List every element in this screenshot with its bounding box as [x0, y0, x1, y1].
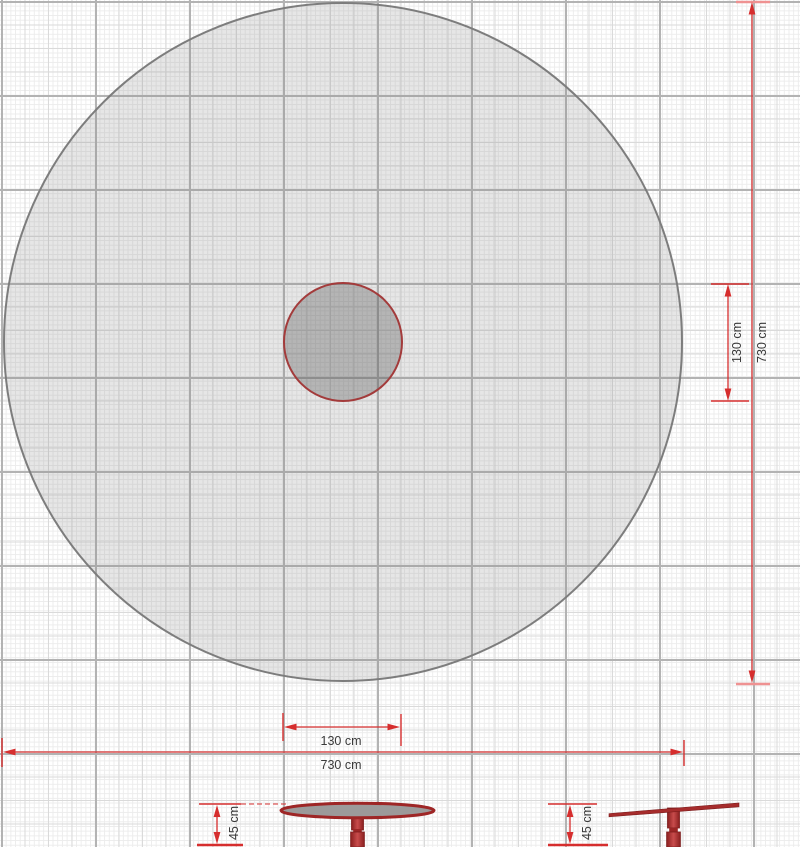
- dimension-drawing-svg: 130 cm 730 cm 130 cm 730 cm: [0, 0, 800, 847]
- dim-label-height-left: 45 cm: [227, 806, 241, 840]
- arrow-down-icon: [567, 832, 574, 844]
- arrow-up-icon: [214, 805, 221, 817]
- table-side-view: [609, 803, 739, 847]
- dim-label-inner-diameter-right: 130 cm: [730, 322, 744, 363]
- arrow-down-icon: [749, 671, 756, 684]
- dimension-height-right: 45 cm: [548, 804, 608, 845]
- dimension-right-inner: 130 cm: [711, 284, 749, 401]
- table-top-disc: [281, 803, 434, 818]
- arrow-right-icon: [671, 749, 684, 756]
- equipment-circle: [284, 283, 402, 401]
- dim-label-height-right: 45 cm: [580, 806, 594, 840]
- top-view: [4, 3, 682, 681]
- technical-drawing-canvas: 130 cm 730 cm 130 cm 730 cm: [0, 0, 800, 847]
- arrow-up-icon: [567, 805, 574, 817]
- arrow-left-icon: [284, 724, 297, 731]
- arrow-up-icon: [749, 2, 756, 15]
- pedestal-base: [667, 832, 681, 847]
- dim-label-outer-diameter-right: 730 cm: [755, 322, 769, 363]
- arrow-right-icon: [388, 724, 401, 731]
- pedestal-base: [351, 832, 365, 847]
- pedestal-neck: [669, 828, 678, 832]
- arrow-up-icon: [725, 284, 732, 297]
- arrow-down-icon: [725, 389, 732, 402]
- dimension-bottom-inner: 130 cm: [283, 713, 401, 748]
- table-front-view: [281, 803, 434, 847]
- dim-label-inner-width-bottom: 130 cm: [321, 734, 362, 748]
- dim-label-outer-width-bottom: 730 cm: [321, 758, 362, 772]
- arrow-left-icon: [3, 749, 16, 756]
- arrow-down-icon: [214, 832, 221, 844]
- dimension-height-left: 45 cm: [197, 804, 286, 845]
